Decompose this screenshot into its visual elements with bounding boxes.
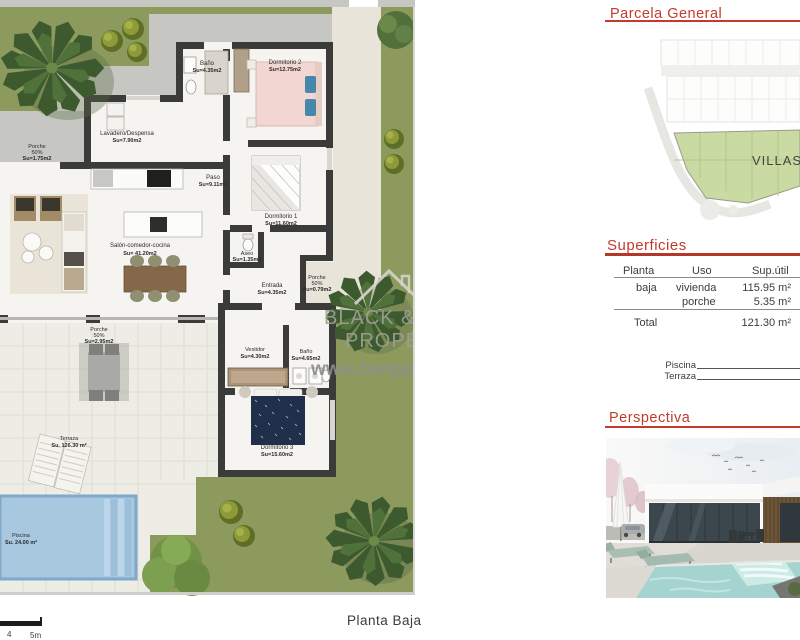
svg-text:porche: porche: [682, 296, 716, 308]
svg-text:Piscina: Piscina: [665, 360, 696, 371]
svg-text:Su=0.79m2: Su=0.79m2: [303, 287, 332, 293]
svg-text:Vestidor: Vestidor: [245, 347, 265, 353]
svg-text:Su=2.95m2: Su=2.95m2: [85, 339, 114, 345]
svg-text:Uso: Uso: [692, 265, 712, 277]
svg-text:Piscina: Piscina: [12, 533, 31, 539]
svg-text:5m: 5m: [30, 631, 41, 640]
svg-text:VILLAS: VILLAS: [752, 153, 800, 168]
svg-text:Dormitorio 3: Dormitorio 3: [261, 445, 294, 451]
svg-text:121.30 m²: 121.30 m²: [741, 317, 791, 329]
svg-text:Terraza: Terraza: [60, 436, 79, 442]
svg-text:Planta: Planta: [623, 265, 655, 277]
svg-text:Dormitorio 1: Dormitorio 1: [265, 214, 298, 220]
svg-text:4: 4: [7, 630, 12, 639]
svg-text:Entrada: Entrada: [261, 283, 283, 289]
svg-text:Su. 126.30 m²: Su. 126.30 m²: [51, 442, 86, 449]
svg-text:Dormitorio 2: Dormitorio 2: [269, 60, 302, 66]
svg-text:Perspectiva: Perspectiva: [609, 410, 691, 426]
svg-text:Superficies: Superficies: [607, 237, 687, 254]
svg-text:Su=4.30m2: Su=4.30m2: [241, 354, 270, 360]
svg-text:Sup.útil: Sup.útil: [752, 265, 789, 277]
svg-text:5.35 m²: 5.35 m²: [754, 296, 792, 308]
svg-text:Su=9.11m2: Su=9.11m2: [199, 182, 228, 188]
svg-text:Su=11.60m2: Su=11.60m2: [265, 221, 297, 227]
svg-text:Parcela General: Parcela General: [610, 6, 722, 22]
svg-text:Paso: Paso: [206, 175, 220, 181]
svg-text:Lavadero/Despensa: Lavadero/Despensa: [100, 131, 154, 137]
svg-text:Baño: Baño: [200, 61, 215, 67]
svg-text:115.95 m²: 115.95 m²: [742, 282, 791, 294]
svg-text:Su. 24.00 m²: Su. 24.00 m²: [5, 539, 37, 546]
svg-text:Su=7.90m2: Su=7.90m2: [113, 138, 142, 144]
svg-text:Su=4.35m2: Su=4.35m2: [258, 290, 287, 296]
svg-text:Su=1.75m2: Su=1.75m2: [23, 156, 52, 162]
svg-text:Su=15.60m2: Su=15.60m2: [261, 452, 293, 458]
svg-text:Terraza: Terraza: [664, 371, 696, 382]
svg-text:Baño: Baño: [300, 349, 313, 355]
svg-text:Planta Baja: Planta Baja: [347, 613, 422, 628]
svg-text:Su=12.75m2: Su=12.75m2: [269, 67, 301, 73]
svg-text:Salón-comedor-cocina: Salón-comedor-cocina: [110, 243, 171, 249]
svg-text:baja: baja: [636, 282, 658, 294]
svg-text:Su= 41.20m2: Su= 41.20m2: [123, 251, 156, 257]
svg-text:vivienda: vivienda: [676, 282, 717, 294]
svg-text:Su=4.35m2: Su=4.35m2: [193, 68, 222, 74]
svg-text:Total: Total: [634, 317, 657, 329]
svg-text:Su=1.35m2: Su=1.35m2: [233, 257, 262, 263]
